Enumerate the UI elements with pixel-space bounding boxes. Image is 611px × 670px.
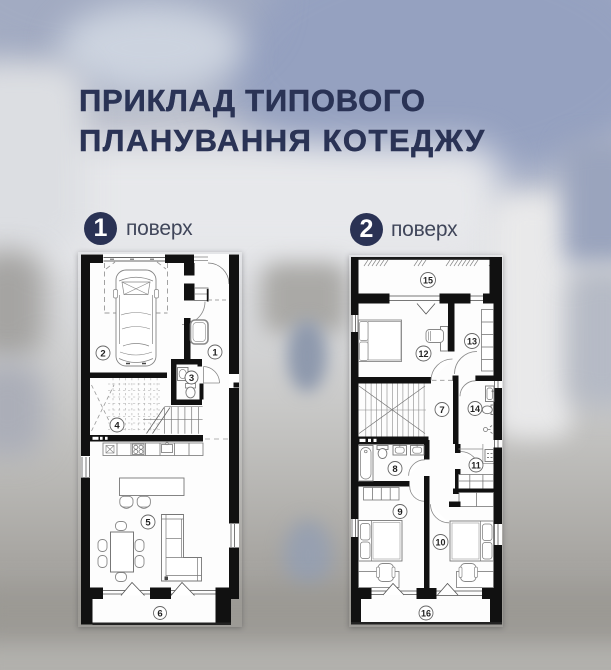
svg-text:15: 15	[423, 275, 433, 285]
svg-text:16: 16	[421, 608, 431, 618]
svg-text:1: 1	[212, 347, 218, 358]
svg-text:8: 8	[392, 464, 397, 475]
svg-text:11: 11	[471, 460, 481, 470]
svg-text:6: 6	[157, 608, 162, 619]
svg-text:12: 12	[418, 349, 428, 359]
svg-text:7: 7	[439, 405, 444, 416]
svg-text:14: 14	[470, 404, 480, 414]
svg-text:13: 13	[467, 336, 477, 346]
svg-text:5: 5	[145, 517, 151, 528]
svg-text:3: 3	[189, 373, 194, 384]
svg-text:9: 9	[397, 507, 402, 518]
svg-text:10: 10	[435, 537, 445, 547]
svg-text:2: 2	[100, 348, 105, 359]
svg-text:4: 4	[114, 420, 120, 431]
